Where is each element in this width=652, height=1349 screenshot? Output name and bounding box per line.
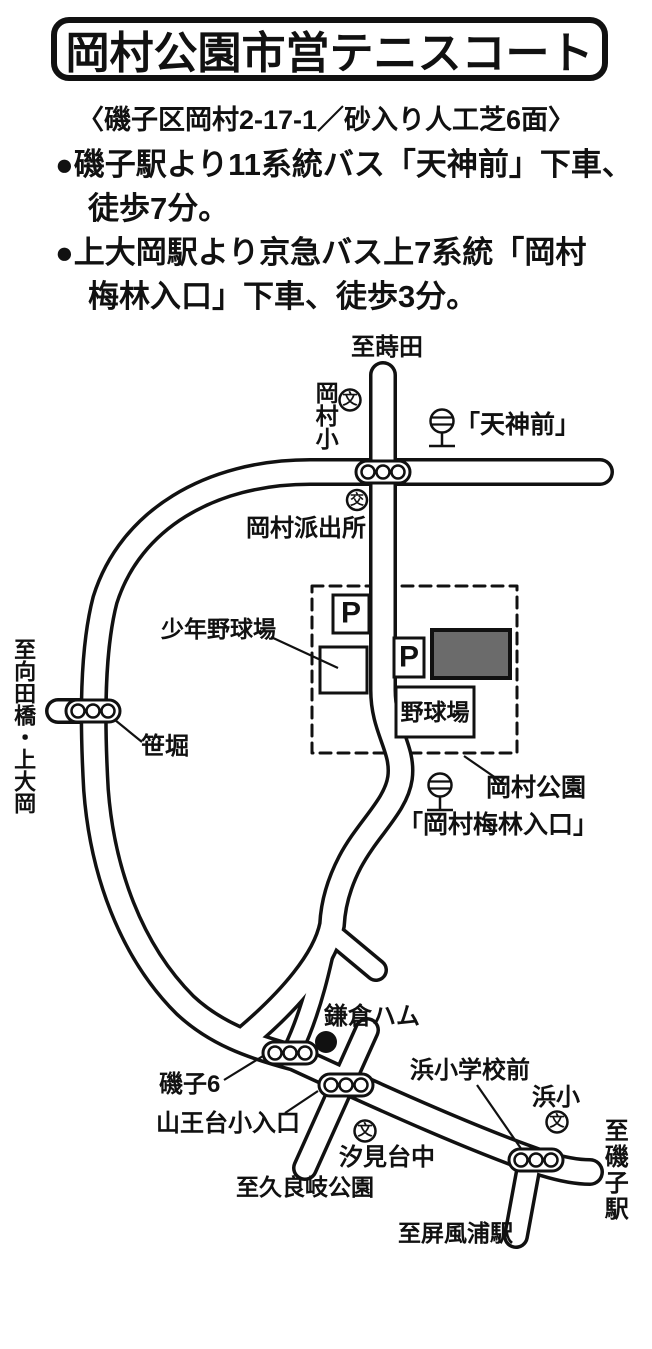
school-symbol-hama: 文 <box>549 1114 564 1130</box>
signal-tenjinmae <box>356 461 410 483</box>
label-hama-school-front: 浜小学校前 <box>410 1058 530 1083</box>
youth-baseball-square <box>320 647 367 693</box>
label-sannodai-entrance: 山王台小入口 <box>156 1111 300 1136</box>
school-symbol-shiomidai: 文 <box>357 1123 372 1139</box>
kamakura-ham-dot <box>315 1031 337 1053</box>
leader-isogo6 <box>224 1056 263 1080</box>
label-okamura-elementary: 岡村小 <box>313 381 337 450</box>
parking-letter-2: P <box>399 641 419 673</box>
bus-stop-icon-bairin <box>427 774 453 811</box>
label-okamura-park: 岡村公園 <box>486 775 586 801</box>
parking-letter-1: P <box>341 597 361 629</box>
signal-isogo6 <box>263 1042 317 1064</box>
tennis-courts-rect <box>432 630 510 678</box>
signal-hama-school-front <box>509 1149 563 1171</box>
label-to-byobugaura-station: 至屏風浦駅 <box>398 1221 513 1245</box>
leader-sasabori <box>115 720 142 742</box>
access-map-page: 岡村公園市営テニスコート 〈磯子区岡村2-17-1／砂入り人工芝6面〉 ●磯子駅… <box>0 0 652 1349</box>
label-okamura-police-box: 岡村派出所 <box>246 516 366 541</box>
label-baseball-field: 野球場 <box>401 700 470 724</box>
label-isogo6: 磯子6 <box>159 1072 220 1097</box>
signal-sannodai <box>319 1074 373 1096</box>
label-sasabori: 笹堀 <box>141 734 189 759</box>
signal-sasabori <box>66 700 120 722</box>
bus-stop-icon-tenjinmae <box>429 410 455 447</box>
label-okamura-bairin-stop: 「岡村梅林入口」 <box>398 812 598 838</box>
label-youth-baseball-field: 少年野球場 <box>161 617 276 641</box>
label-kamakura-ham: 鎌倉ハム <box>324 1004 420 1029</box>
label-tenjinmae-stop: 「天神前」 <box>455 412 580 438</box>
police-symbol: 交 <box>350 493 364 508</box>
school-symbol-okamura: 文 <box>342 392 357 408</box>
label-to-maita: 至蒔田 <box>351 335 423 360</box>
label-to-kuraki-park: 至久良岐公園 <box>236 1175 374 1199</box>
label-to-isogo-station: 至磯子駅 <box>601 1118 626 1222</box>
label-hama-elementary: 浜小 <box>532 1085 580 1110</box>
label-to-mukaidabashi-kamiooka: 至向田橋・上大岡 <box>12 638 35 814</box>
map-canvas <box>0 0 652 1349</box>
label-shiomidai-jhs: 汐見台中 <box>339 1145 435 1170</box>
roads-layer <box>58 375 600 1236</box>
